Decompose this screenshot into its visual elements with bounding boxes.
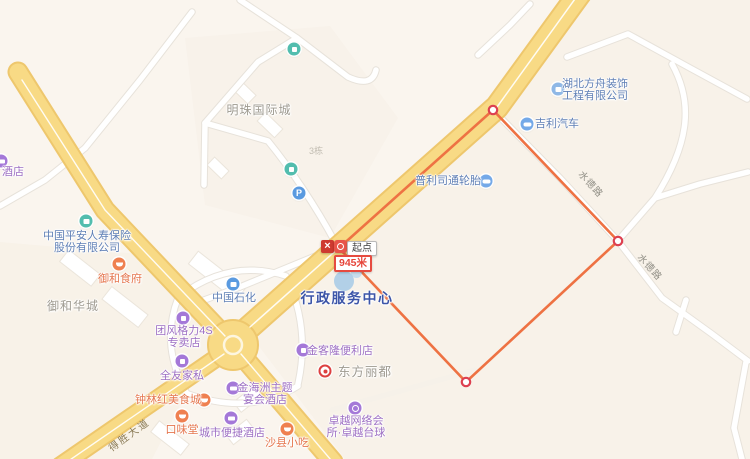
map-canvas[interactable]: 酒店明珠国际城3栋湖北方舟装饰工程有限公司吉利汽车普利司通轮胎水德路水德路中国平… — [0, 0, 750, 459]
label-shuide-road-1: 水德路 — [575, 169, 605, 200]
label-pingan-insurance[interactable]: 中国平安人寿保险股份有限公司 — [43, 230, 131, 254]
label-hubei-fangzhou[interactable]: 湖北方舟装饰工程有限公司 — [562, 78, 628, 102]
label-bridgestone-tires[interactable]: 普利司通轮胎 — [415, 175, 481, 187]
label-yuhe-huacheng[interactable]: 御和华城 — [47, 300, 99, 312]
company-teal-icon[interactable] — [80, 215, 93, 228]
label-dongfang-lidu[interactable]: 东方丽都 — [338, 366, 392, 378]
label-hotel-cut[interactable]: 酒店 — [2, 166, 24, 178]
label-zhuoyue-billiards[interactable]: 卓越网络会所·卓越台球 — [327, 415, 386, 439]
teal-dot-icon[interactable] — [285, 163, 298, 176]
car-icon[interactable] — [521, 118, 534, 131]
store-icon[interactable] — [176, 355, 189, 368]
billiard-icon[interactable] — [349, 402, 362, 415]
restaurant-icon[interactable] — [113, 258, 126, 271]
store-icon[interactable] — [177, 312, 190, 325]
gas-icon[interactable] — [227, 278, 240, 291]
label-gree-4s-store[interactable]: 团风格力4S专卖店 — [155, 325, 212, 349]
restaurant-icon[interactable] — [176, 410, 189, 423]
label-yuhe-shifu[interactable]: 御和食府 — [98, 273, 142, 285]
label-jinkelong-store[interactable]: 金客隆便利店 — [307, 345, 373, 357]
hotel-icon[interactable] — [225, 412, 238, 425]
label-jinhaizhou-hotel[interactable]: 金海洲主题宴会酒店 — [238, 382, 293, 406]
target-icon[interactable] — [319, 365, 332, 378]
label-city-comfort-hotel[interactable]: 城市便捷酒店 — [199, 427, 265, 439]
label-shaxian-xiaochi[interactable]: 沙县小吃 — [265, 437, 309, 449]
teal-dot-icon[interactable] — [288, 43, 301, 56]
label-building-3: 3栋 — [309, 145, 323, 157]
label-sinopec[interactable]: 中国石化 — [212, 292, 256, 304]
label-geely-auto[interactable]: 吉利汽车 — [535, 118, 579, 130]
close-icon[interactable] — [321, 240, 334, 253]
measure-start-marker-icon[interactable] — [334, 240, 347, 253]
label-desheng-avenue: 得胜大道 — [107, 417, 153, 455]
measure-distance-label: 945米 — [334, 255, 372, 272]
restaurant-icon[interactable] — [281, 423, 294, 436]
label-quanyou-jiasi[interactable]: 全友家私 — [160, 370, 204, 382]
parking-icon[interactable]: P — [293, 187, 306, 200]
label-mingzhu-guojicheng[interactable]: 明珠国际城 — [226, 104, 291, 116]
label-zhonglinhong-food[interactable]: 钟林红美食城 — [135, 394, 201, 406]
label-kouweitang[interactable]: 口味堂 — [166, 424, 199, 436]
car-icon[interactable] — [480, 175, 493, 188]
label-shuide-road-2: 水德路 — [634, 252, 664, 283]
label-layer: 酒店明珠国际城3栋湖北方舟装饰工程有限公司吉利汽车普利司通轮胎水德路水德路中国平… — [0, 0, 750, 459]
measure-start-label: 起点 — [347, 241, 377, 256]
label-admin-service-center[interactable]: 行政服务中心 — [301, 292, 394, 304]
